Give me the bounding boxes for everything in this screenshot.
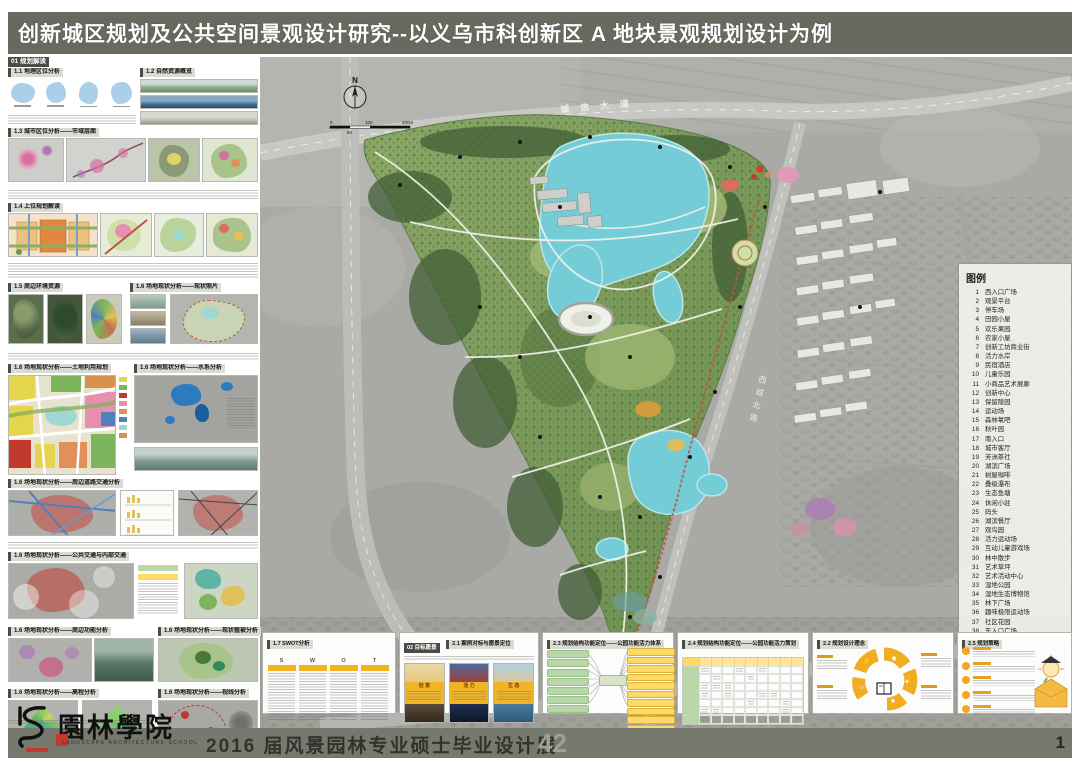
- legend-item: 27 观鸟园: [966, 526, 1066, 535]
- swot-column: T: [360, 658, 389, 721]
- transit-analysis: [8, 563, 258, 623]
- legend-item: 37 社区花园: [966, 618, 1066, 627]
- legend-item-label: 湿地生态博物馆: [985, 590, 1030, 599]
- transit-notes: [138, 565, 180, 619]
- legend-item-number: 36: [966, 608, 979, 617]
- district-map-shape: [111, 82, 132, 104]
- vision-cards: 创 意 活 力 生 态: [404, 663, 534, 723]
- legend-item: 2 观景平台: [966, 297, 1066, 306]
- svg-text:✦: ✦: [904, 678, 910, 686]
- legend-item: 6 农家小屋: [966, 334, 1066, 343]
- nature-photos: [140, 79, 258, 126]
- legend-item: 13 保留陵园: [966, 398, 1066, 407]
- legend-item-number: 5: [966, 325, 979, 334]
- legend-item: 18 城市客厅: [966, 444, 1066, 453]
- water-analysis: [134, 375, 258, 475]
- legend-item-number: 4: [966, 315, 979, 324]
- header-1-2: 1.2 自然资源概览: [140, 68, 195, 77]
- swot-text: [330, 673, 357, 721]
- legend-item-number: 14: [966, 407, 979, 416]
- legend-item: 4 田园小屋: [966, 315, 1066, 324]
- legend-item-number: 13: [966, 398, 979, 407]
- vision-card-ecology: 生 态: [493, 663, 534, 723]
- swot-letter: T: [373, 658, 376, 664]
- legend-item-number: 10: [966, 370, 979, 379]
- title-band: 创新城区规划及公共空间景观设计研究--以义乌市科创新区 A 地块景观规划设计为例: [8, 12, 1072, 54]
- logo-english-name: LANDSCAPE ARCHITECTURE SCHOOL: [62, 740, 199, 746]
- swot-letter: S: [280, 658, 284, 664]
- swot-text: [268, 673, 295, 721]
- core-area-blob: [17, 149, 39, 169]
- vision-card-label: 创 意: [419, 683, 430, 689]
- water-photo: [134, 447, 258, 471]
- legend-item-number: 19: [966, 453, 979, 462]
- legend-item-number: 15: [966, 416, 979, 425]
- legend-item-number: 8: [966, 352, 979, 361]
- header-1-6f2: 1.6 场地现状分析——现状植被分析: [158, 627, 261, 636]
- header-1-6c: 1.6 场地现状分析——水系分析: [134, 364, 225, 373]
- legend-item-label: 趣味极限运动场: [985, 608, 1030, 617]
- legend-item-number: 35: [966, 599, 979, 608]
- legend-item-label: 民宿酒店: [985, 361, 1011, 370]
- legend-item: 32 艺术活动中心: [966, 572, 1066, 581]
- china-map-shape: [11, 83, 35, 103]
- section-chip-01: 01 规划解读: [8, 57, 49, 67]
- mindmap-right-chips: [627, 647, 675, 733]
- legend-item: 5 欢乐果园: [966, 325, 1066, 334]
- legend-item-number: 2: [966, 297, 979, 306]
- vision-card-label: 活 力: [463, 683, 474, 689]
- swot-letter: W: [310, 658, 315, 664]
- poster-title: 创新城区规划及公共空间景观设计研究--以义乌市科创新区 A 地块景观规划设计为例: [8, 18, 833, 48]
- legend-item-label: 艺术活动中心: [985, 572, 1023, 581]
- masterplan-svg: N 0 50 100 200m: [260, 57, 1072, 730]
- legend-item-label: 生态鱼塘: [985, 489, 1011, 498]
- concept-panel: 2.2 规划设计理念 ✹✦★☼⚡: [812, 632, 954, 714]
- legend-item-label: 休闲小驻: [985, 499, 1011, 508]
- site-photos-map: [130, 294, 258, 350]
- city-map-shape: [79, 82, 98, 104]
- legend-item: 31 艺术草坪: [966, 563, 1066, 572]
- header-1-6b: 1.6 场地现状分析——土地利用规划: [8, 364, 111, 373]
- legend-item-number: 34: [966, 590, 979, 599]
- logo-monogram-icon: [10, 702, 56, 754]
- vision-card-creative: 创 意: [404, 663, 445, 723]
- legend-item-number: 12: [966, 389, 979, 398]
- legend-item-label: 艺术草坪: [985, 563, 1011, 572]
- photo-fields: [140, 111, 258, 125]
- legend-item: 33 湿地公园: [966, 581, 1066, 590]
- legend-item-number: 22: [966, 480, 979, 489]
- page-number: 1: [1056, 733, 1065, 753]
- legend-item: 10 儿童乐园: [966, 370, 1066, 379]
- legend-item-label: 城市客厅: [985, 444, 1011, 453]
- legend-item: 3 停车场: [966, 306, 1066, 315]
- legend-item-label: 芳洲茶社: [985, 453, 1011, 462]
- photo-hills: [140, 79, 258, 93]
- swot-column: W: [298, 658, 327, 721]
- vision-card-label: 生 态: [508, 683, 519, 689]
- legend-item-number: 21: [966, 471, 979, 480]
- legend-item-label: 秋叶园: [985, 425, 1004, 434]
- legend-item-label: 小商品艺术展廊: [985, 380, 1030, 389]
- header-1-4: 1.4 上位规划解读: [8, 203, 63, 212]
- legend-item: 36 趣味极限运动场: [966, 608, 1066, 617]
- header-1-3: 1.3 城市区位分析——市域层面: [8, 128, 99, 137]
- landuse-legend: [119, 377, 131, 473]
- header-1-6a: 1.6 场地现状分析——现状照片: [130, 283, 221, 292]
- strategy-panel: 2.5 规划策略: [957, 632, 1072, 714]
- legend-panel: 图例 1 西入口广场 2 观景平台 3 停车场 4: [958, 263, 1072, 641]
- legend-item-number: 24: [966, 499, 979, 508]
- vision-title: 2.1 案例对标与愿景定位: [446, 640, 514, 649]
- masterplan-map: N 0 50 100 200m 诚信大道 西城北路: [260, 57, 1072, 730]
- swot-header-bar: [361, 665, 389, 671]
- legend-item-label: 活力运动场: [985, 535, 1017, 544]
- header-1-1: 1.1 地理区位分析: [8, 68, 63, 77]
- legend-item-number: 11: [966, 380, 979, 389]
- legend-item-number: 7: [966, 343, 979, 352]
- svg-text:★: ★: [890, 697, 896, 705]
- legend-item-label: 欢乐果园: [985, 325, 1011, 334]
- header-1-6e: 1.6 场地现状分析——公共交通与内部交通: [8, 552, 129, 561]
- legend-item: 17 南入口: [966, 435, 1066, 444]
- legend-item: 11 小商品艺术展廊: [966, 380, 1066, 389]
- legend-item-label: 活力水岸: [985, 352, 1011, 361]
- legend-item-label: 湖滨广场: [985, 462, 1011, 471]
- legend-item-label: 田园小屋: [985, 315, 1011, 324]
- scale-50: 50: [347, 130, 353, 135]
- swot-header-bar: [330, 665, 358, 671]
- concept-label-right: [921, 653, 951, 667]
- legend-item-label: 儿童乐园: [985, 370, 1011, 379]
- legend-item-number: 26: [966, 517, 979, 526]
- legend-item: 9 民宿酒店: [966, 361, 1066, 370]
- vision-chip: 02 目标愿景: [404, 643, 440, 653]
- board-number: 42: [538, 728, 567, 759]
- legend-item-number: 17: [966, 435, 979, 444]
- traffic-analysis: [8, 490, 258, 540]
- header-1-6d: 1.6 场地现状分析——周边道路交通分析: [8, 479, 123, 488]
- legend-item-label: 创新中心: [985, 389, 1011, 398]
- legend-item-number: 1: [966, 288, 979, 297]
- mindmap-left-chips: [547, 649, 589, 715]
- legend-item-number: 32: [966, 572, 979, 581]
- swot-column: O: [329, 658, 358, 721]
- svg-text:⚡: ⚡: [863, 656, 872, 665]
- legend-item-label: 湿地公园: [985, 581, 1011, 590]
- location-maps: [8, 79, 136, 113]
- legend-item-label: 森林氧吧: [985, 416, 1011, 425]
- photo-lake-city: [140, 95, 258, 109]
- landuse-map: [8, 375, 116, 475]
- analysis-column: 01 规划解读 1.1 地理区位分析 1.2 自然资源概览 1.3 城市区位分析…: [8, 57, 258, 728]
- legend-item: 15 森林氧吧: [966, 416, 1066, 425]
- body-text-1-3: [8, 190, 258, 200]
- concept-label-bottomright: [921, 685, 951, 699]
- town-core: [167, 153, 181, 165]
- swot-column: S: [267, 658, 296, 721]
- swot-header-bar: [268, 665, 296, 671]
- concept-label-left: [817, 655, 847, 669]
- legend-item-number: 18: [966, 444, 979, 453]
- swot-text: [361, 673, 388, 721]
- legend-item-number: 23: [966, 489, 979, 498]
- school-logo: 園林學院 LANDSCAPE ARCHITECTURE SCHOOL: [10, 700, 200, 760]
- legend-item-number: 29: [966, 544, 979, 553]
- legend-item-label: 南入口: [985, 435, 1004, 444]
- legend-item-number: 30: [966, 554, 979, 563]
- legend-item-label: 林中散步: [985, 554, 1011, 563]
- exhibition-title: 2016 届风景园林专业硕士毕业设计展: [206, 731, 558, 758]
- legend-item: 20 湖滨广场: [966, 462, 1066, 471]
- vision-intro: [404, 656, 534, 660]
- legend-list: 1 西入口广场 2 观景平台 3 停车场 4 田园小屋: [966, 288, 1066, 645]
- legend-item: 35 林下广场: [966, 599, 1066, 608]
- province-map-shape: [46, 82, 66, 103]
- scale-100: 100: [365, 120, 373, 125]
- legend-item-label: 社区花园: [985, 618, 1011, 627]
- city-location-maps: [8, 138, 258, 188]
- header-1-5: 1.5 周边环境资源: [8, 283, 63, 292]
- legend-item: 25 码头: [966, 508, 1066, 517]
- scale-200: 200m: [402, 120, 414, 125]
- legend-item: 22 叠级瀑布: [966, 480, 1066, 489]
- function-vegetation: [8, 638, 258, 686]
- program-table-panel: 2.4 规划结构功能定位——公园功能活力策划: [677, 632, 809, 714]
- district-plan-shape: [211, 144, 247, 178]
- header-1-6h: 1.6 场地现状分析——视线分析: [158, 689, 249, 698]
- legend-item-number: 9: [966, 361, 979, 370]
- svg-text:☼: ☼: [859, 684, 865, 691]
- table-title: 2.4 规划结构功能定位——公园功能活力策划: [682, 640, 799, 649]
- swot-columns: S W O T: [267, 658, 391, 721]
- body-text-1-6d: [8, 542, 258, 549]
- legend-item: 29 互动儿童游戏场: [966, 544, 1066, 553]
- vision-panel: 02 目标愿景 2.1 案例对标与愿景定位 创 意 活 力: [399, 632, 539, 714]
- legend-item-number: 6: [966, 334, 979, 343]
- legend-item-label: 创新工坊商业街: [985, 343, 1030, 352]
- swot-letter: O: [341, 658, 345, 664]
- strategy-illustration: [1033, 651, 1069, 709]
- poster-page: 创新城区规划及公共空间景观设计研究--以义乌市科创新区 A 地块景观规划设计为例: [0, 0, 1080, 764]
- legend-item-label: 西入口广场: [985, 288, 1017, 297]
- swot-title: 1.7 SWOT分析: [267, 640, 313, 649]
- legend-item: 23 生态鱼塘: [966, 489, 1066, 498]
- legend-item-label: 互动儿童游戏场: [985, 544, 1030, 553]
- vision-card-vitality: 活 力: [449, 663, 490, 723]
- legend-item: 24 休闲小驻: [966, 499, 1066, 508]
- legend-item-number: 31: [966, 563, 979, 572]
- legend-item-label: 树屋咖啡: [985, 471, 1011, 480]
- swot-header-bar: [299, 665, 327, 671]
- legend-item-number: 25: [966, 508, 979, 517]
- mindmap-panel: 2.3 规划结构功能定位——公园功能活力体系: [542, 632, 674, 714]
- swot-panel: 1.7 SWOT分析 S W O: [262, 632, 396, 714]
- legend-item-label: 观鸟园: [985, 526, 1004, 535]
- upper-planning-maps: [8, 213, 258, 261]
- legend-item: 16 秋叶园: [966, 425, 1066, 434]
- legend-item: 26 湖滨餐厅: [966, 517, 1066, 526]
- sub-area-blob: [41, 145, 53, 156]
- legend-item-label: 停车场: [985, 306, 1004, 315]
- legend-item: 21 树屋咖啡: [966, 471, 1066, 480]
- legend-item-label: 湖滨餐厅: [985, 517, 1011, 526]
- legend-item-number: 20: [966, 462, 979, 471]
- legend-item-number: 33: [966, 581, 979, 590]
- legend-item-label: 林下广场: [985, 599, 1011, 608]
- legend-item: 28 活力运动场: [966, 535, 1066, 544]
- body-text-1-5: [8, 353, 258, 361]
- legend-item: 1 西入口广场: [966, 288, 1066, 297]
- legend-item-label: 码头: [985, 508, 998, 517]
- context-maps: [8, 294, 124, 350]
- header-1-6f: 1.6 场地现状分析——周边功能分析: [8, 627, 111, 636]
- legend-item: 30 林中散步: [966, 554, 1066, 563]
- legend-item: 12 创新中心: [966, 389, 1066, 398]
- legend-item: 14 运动场: [966, 407, 1066, 416]
- body-text-1-1: [8, 115, 136, 126]
- swot-text: [299, 673, 326, 721]
- legend-item-number: 27: [966, 526, 979, 535]
- header-1-6g: 1.6 场地现状分析——高程分析: [8, 689, 99, 698]
- strategy-list: [962, 647, 1032, 715]
- concept-label-bottomleft: [817, 685, 847, 699]
- legend-item-number: 37: [966, 618, 979, 627]
- concept-donut: ✹✦★☼⚡: [849, 645, 919, 713]
- legend-item: 34 湿地生态博物馆: [966, 590, 1066, 599]
- legend-item-number: 3: [966, 306, 979, 315]
- legend-item-number: 16: [966, 425, 979, 434]
- legend-item-label: 观景平台: [985, 297, 1011, 306]
- body-text-1-4: [8, 263, 258, 279]
- legend-item-label: 叠级瀑布: [985, 480, 1011, 489]
- street-photo: [94, 638, 154, 682]
- legend-item-label: 保留陵园: [985, 398, 1011, 407]
- north-label: N: [352, 76, 358, 85]
- legend-item-number: 28: [966, 535, 979, 544]
- svg-text:✹: ✹: [891, 655, 897, 663]
- program-table: [682, 657, 804, 725]
- legend-item: 8 活力水岸: [966, 352, 1066, 361]
- legend-item: 19 芳洲茶社: [966, 453, 1066, 462]
- legend-title: 图例: [966, 270, 1066, 285]
- legend-item-label: 运动场: [985, 407, 1004, 416]
- mindmap-center-node: [599, 675, 627, 686]
- legend-item: 7 创新工坊商业街: [966, 343, 1066, 352]
- legend-item-label: 农家小屋: [985, 334, 1011, 343]
